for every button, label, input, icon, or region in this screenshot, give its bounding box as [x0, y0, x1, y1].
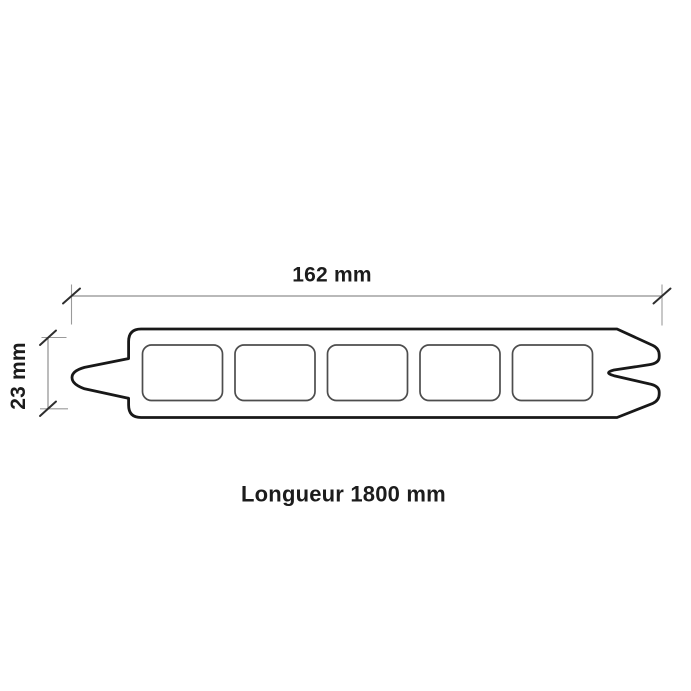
chamber-cavity	[328, 345, 408, 401]
chamber-cavity	[235, 345, 315, 401]
thickness-dimension-label: 23 mm	[7, 342, 30, 410]
chamber-cavity	[513, 345, 593, 401]
technical-drawing-canvas: 162 mm 23 mm Longueur 1800 mm	[0, 0, 691, 691]
thickness-dimension: 23 mm	[7, 331, 68, 417]
board-profile	[72, 329, 659, 418]
chamber-cavity	[143, 345, 223, 401]
length-label: Longueur 1800 mm	[241, 482, 446, 507]
width-dimension-label: 162 mm	[292, 264, 371, 287]
width-dimension: 162 mm	[63, 264, 671, 326]
chamber-cavity	[420, 345, 500, 401]
decking-profile-diagram: 162 mm 23 mm Longueur 1800 mm	[0, 0, 691, 691]
